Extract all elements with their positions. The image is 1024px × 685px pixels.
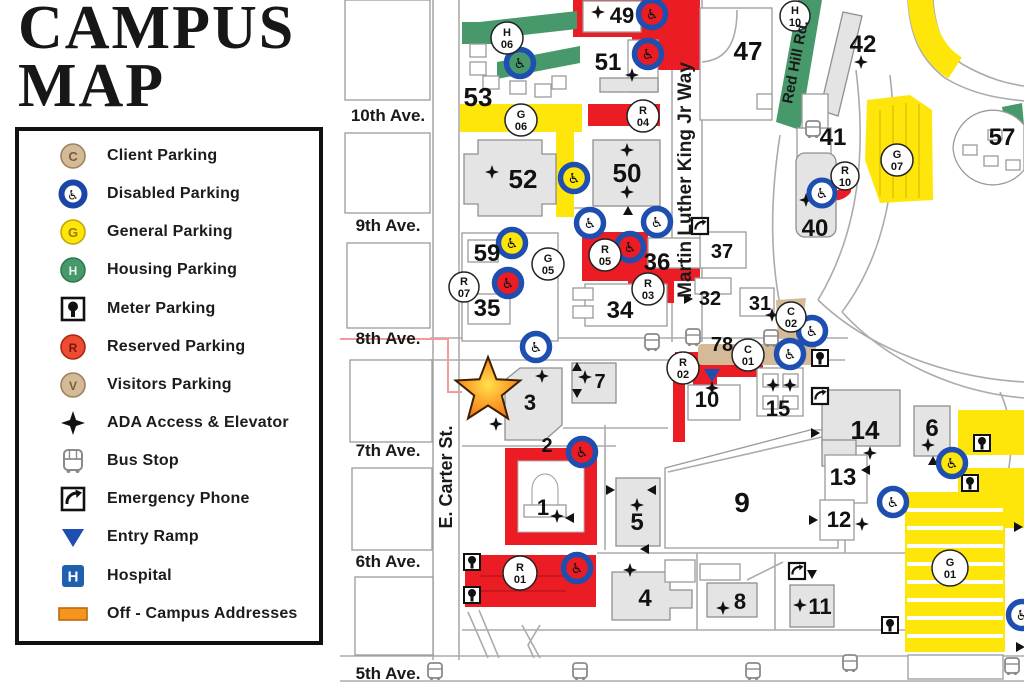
svg-text:57: 57	[989, 124, 1016, 151]
svg-text:2: 2	[541, 435, 552, 457]
svg-text:R: R	[679, 357, 687, 369]
svg-text:05: 05	[542, 265, 554, 277]
svg-text:1: 1	[537, 495, 549, 520]
svg-text:♿: ♿	[816, 186, 829, 202]
svg-text:02: 02	[677, 369, 689, 381]
svg-text:8: 8	[734, 589, 746, 614]
svg-text:10: 10	[839, 177, 851, 189]
building-47b	[757, 94, 772, 109]
svg-text:42: 42	[850, 31, 877, 58]
legend-row-disabled-parking: ♿ Disabled Parking	[19, 178, 319, 210]
legend-row-ada-access: ADA Access & Elevator	[19, 407, 319, 439]
svg-text:♿: ♿	[576, 445, 589, 461]
legend-row-client-parking: C Client Parking	[19, 140, 319, 172]
map-legend: C Client Parking ♿ Disabled Parking G Ge…	[15, 127, 323, 645]
emergency-phone-icon	[55, 484, 91, 514]
svg-text:59: 59	[474, 240, 501, 267]
svg-text:5: 5	[630, 509, 643, 536]
svg-text:E. Carter St.: E. Carter St.	[436, 425, 456, 528]
svg-text:31: 31	[749, 293, 771, 315]
svg-text:36: 36	[644, 249, 671, 276]
building-53e	[535, 84, 551, 97]
off-campus-icon	[55, 599, 91, 629]
svg-text:34: 34	[607, 297, 634, 324]
legend-row-emergency-phone: Emergency Phone	[19, 483, 319, 515]
svg-text:07: 07	[891, 161, 903, 173]
svg-text:15: 15	[766, 396, 790, 421]
svg-text:47: 47	[734, 36, 763, 66]
svg-text:G: G	[544, 253, 553, 265]
svg-text:♿: ♿	[646, 7, 659, 23]
svg-text:R: R	[460, 276, 468, 288]
hospital-icon: H	[55, 561, 91, 591]
svg-text:H: H	[69, 264, 78, 278]
svg-text:♿: ♿	[624, 240, 637, 256]
disabled-parking-icon: ♿	[55, 178, 91, 210]
svg-text:H: H	[68, 568, 79, 585]
svg-text:R: R	[841, 165, 849, 177]
svg-text:R: R	[601, 244, 609, 256]
svg-text:7: 7	[594, 371, 605, 393]
svg-text:32: 32	[699, 288, 721, 310]
svg-text:13: 13	[830, 464, 857, 491]
svg-text:05: 05	[599, 256, 611, 268]
svg-text:♿: ♿	[506, 236, 519, 252]
svg-text:♿: ♿	[642, 47, 655, 63]
svg-text:4: 4	[638, 585, 652, 612]
legend-row-bus-stop: Bus Stop	[19, 445, 319, 477]
building-9	[665, 430, 838, 548]
svg-text:78: 78	[711, 334, 733, 356]
reserved-parking-icon: R	[55, 332, 91, 362]
svg-text:9: 9	[734, 487, 750, 518]
legend-label: Emergency Phone	[107, 490, 250, 508]
legend-label: Meter Parking	[107, 300, 215, 318]
building-8	[707, 583, 757, 617]
legend-row-meter-parking: Meter Parking	[19, 293, 319, 325]
legend-row-housing-parking: H Housing Parking	[19, 254, 319, 286]
svg-text:02: 02	[785, 318, 797, 330]
legend-label: Client Parking	[107, 147, 217, 165]
svg-text:♿: ♿	[651, 215, 664, 231]
building-53d	[510, 81, 526, 94]
building-53f	[552, 76, 566, 89]
housing-parking-icon: H	[55, 255, 91, 285]
svg-text:53: 53	[464, 82, 493, 112]
svg-text:3: 3	[524, 390, 536, 415]
svg-text:H: H	[503, 27, 511, 39]
svg-text:35: 35	[474, 295, 501, 322]
svg-text:04: 04	[637, 117, 650, 129]
svg-text:8th Ave.: 8th Ave.	[356, 329, 421, 348]
svg-text:C: C	[68, 149, 78, 164]
legend-label: Bus Stop	[107, 452, 179, 470]
svg-text:G: G	[893, 149, 902, 161]
svg-text:R: R	[644, 278, 652, 290]
svg-text:R: R	[69, 341, 78, 355]
svg-text:07: 07	[458, 288, 470, 300]
svg-text:♿: ♿	[1016, 608, 1024, 624]
svg-text:Martin Luther King Jr Way: Martin Luther King Jr Way	[675, 62, 696, 298]
legend-label: Off - Campus Addresses	[107, 605, 298, 623]
legend-row-off-campus: Off - Campus Addresses	[19, 598, 319, 630]
svg-text:14: 14	[851, 415, 880, 445]
svg-text:H: H	[791, 5, 799, 17]
campus-map-page: ♿ ♿ ♿ ♿ ♿ ♿ ♿ ♿ ♿ ♿ ♿ ♿ ♿ ♿ ♿ ♿ ♿ ♿ H06 …	[0, 0, 1024, 685]
page-title-line2: MAP	[18, 58, 295, 116]
bus-stop-icon	[55, 446, 91, 476]
svg-text:♿: ♿	[584, 216, 597, 232]
svg-text:♿: ♿	[514, 56, 527, 72]
meter-parking-icon	[55, 294, 91, 324]
svg-text:♿: ♿	[784, 347, 797, 363]
lot-yellow-G01-bar	[905, 641, 1005, 652]
svg-text:C: C	[744, 344, 752, 356]
building-51b	[600, 78, 658, 92]
svg-text:5th Ave.: 5th Ave.	[356, 664, 421, 683]
client-parking-icon: C	[55, 141, 91, 171]
svg-text:10th Ave.: 10th Ave.	[351, 106, 425, 125]
svg-text:♿: ♿	[887, 495, 900, 511]
svg-text:♿: ♿	[530, 340, 543, 356]
legend-row-general-parking: G General Parking	[19, 216, 319, 248]
svg-text:40: 40	[802, 215, 829, 242]
general-parking-icon: G	[55, 217, 91, 247]
block-below-G01	[908, 655, 1003, 679]
legend-label: Housing Parking	[107, 261, 237, 279]
svg-text:♿: ♿	[946, 456, 959, 472]
svg-text:♿: ♿	[502, 276, 515, 292]
svg-text:11: 11	[808, 594, 831, 619]
legend-label: Visitors Parking	[107, 376, 232, 394]
svg-text:01: 01	[742, 356, 754, 368]
svg-text:9th Ave.: 9th Ave.	[356, 216, 421, 235]
svg-text:R: R	[639, 105, 647, 117]
building-53b	[470, 62, 486, 75]
entry-ramp-icon	[55, 522, 91, 552]
svg-text:01: 01	[944, 569, 956, 581]
svg-text:V: V	[69, 379, 77, 393]
legend-label: Hospital	[107, 567, 172, 585]
legend-label: ADA Access & Elevator	[107, 414, 289, 432]
legend-label: Disabled Parking	[107, 185, 240, 203]
svg-text:37: 37	[711, 241, 733, 263]
svg-text:C: C	[787, 306, 795, 318]
svg-text:7th Ave.: 7th Ave.	[356, 441, 421, 460]
svg-text:51: 51	[595, 49, 622, 76]
legend-label: Reserved Parking	[107, 338, 245, 356]
svg-text:50: 50	[613, 158, 642, 188]
visitors-parking-icon: V	[55, 370, 91, 400]
legend-label: Entry Ramp	[107, 528, 199, 546]
svg-text:♿: ♿	[568, 171, 581, 187]
svg-text:G: G	[946, 557, 955, 569]
svg-text:G: G	[68, 225, 78, 240]
svg-text:6: 6	[925, 415, 938, 442]
svg-text:6th Ave.: 6th Ave.	[356, 552, 421, 571]
legend-row-entry-ramp: Entry Ramp	[19, 521, 319, 553]
svg-text:♿: ♿	[67, 189, 79, 204]
page-title: CAMPUS MAP	[18, 0, 295, 115]
svg-text:01: 01	[514, 574, 526, 586]
svg-text:12: 12	[827, 507, 851, 532]
svg-text:49: 49	[610, 3, 634, 28]
legend-row-visitors-parking: V Visitors Parking	[19, 369, 319, 401]
legend-row-reserved-parking: R Reserved Parking	[19, 331, 319, 363]
svg-text:♿: ♿	[806, 324, 819, 340]
svg-text:41: 41	[820, 124, 847, 151]
svg-text:06: 06	[501, 39, 513, 51]
svg-text:R: R	[516, 562, 524, 574]
ada-star-icon	[55, 408, 91, 438]
svg-text:03: 03	[642, 290, 654, 302]
legend-row-hospital: H Hospital	[19, 560, 319, 592]
building-53a	[470, 44, 486, 57]
page-title-line1: CAMPUS	[18, 0, 295, 58]
svg-text:♿: ♿	[571, 561, 584, 577]
legend-label: General Parking	[107, 223, 233, 241]
svg-text:52: 52	[509, 164, 538, 194]
svg-text:G: G	[517, 109, 526, 121]
svg-text:10: 10	[695, 387, 719, 412]
svg-text:06: 06	[515, 121, 527, 133]
